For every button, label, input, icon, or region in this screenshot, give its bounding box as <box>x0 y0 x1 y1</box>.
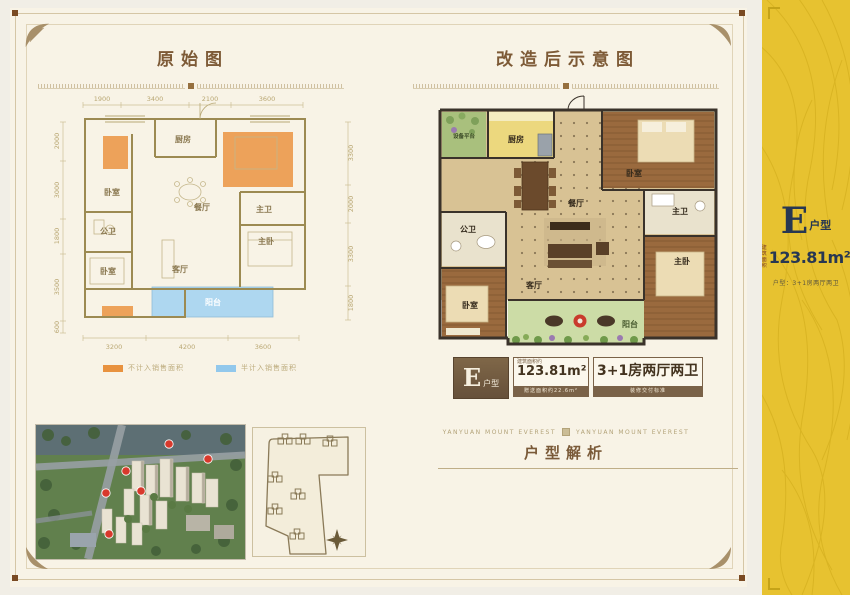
svg-text:1800: 1800 <box>347 295 355 312</box>
legend-label: 不计入销售面积 <box>128 363 184 373</box>
non-sellable-area <box>102 306 133 317</box>
svg-text:卧室: 卧室 <box>104 187 120 197</box>
blue-swatch-icon <box>216 365 236 372</box>
svg-text:1900: 1900 <box>94 95 111 103</box>
svg-text:客厅: 客厅 <box>171 264 188 274</box>
non-sellable-area <box>223 132 293 187</box>
svg-text:卧室: 卧室 <box>626 168 642 178</box>
side-unit-area: 建筑 面积 123.81m² <box>764 245 848 269</box>
svg-text:3500: 3500 <box>53 279 61 296</box>
original-floor-plan: 1900 3400 2100 3600 3200 4200 3600 2000 … <box>50 92 360 362</box>
legend-item: 半计入销售面积 <box>216 363 297 373</box>
svg-text:3400: 3400 <box>147 95 164 103</box>
title-divider <box>38 82 344 90</box>
title-divider <box>413 82 719 90</box>
svg-text:主卫: 主卫 <box>256 204 272 214</box>
brand-text: YANYUAN MOUNT EVEREST <box>576 429 689 436</box>
area-bonus-note: 赠送面积约22.6m² <box>514 386 588 396</box>
corner-square <box>12 575 18 581</box>
divider-diamond-icon <box>188 83 194 89</box>
strip-corner-mark <box>768 578 780 590</box>
svg-text:3300: 3300 <box>347 145 355 162</box>
corner-square <box>739 10 745 16</box>
unit-badges: E 户型 建筑面积约 123.81m² 赠送面积约22.6m² 3+1房两厅两卫… <box>453 357 703 399</box>
layout-badge: 3+1房两厅两卫 装修交付标准 <box>593 357 703 397</box>
non-sellable-area <box>103 136 128 169</box>
svg-text:餐厅: 餐厅 <box>567 198 584 208</box>
brand-line: YANYUAN MOUNT EVEREST YANYUAN MOUNT EVER… <box>420 428 712 436</box>
svg-text:卧室: 卧室 <box>100 266 116 276</box>
svg-text:客厅: 客厅 <box>525 280 542 290</box>
section-title-renovated: 改造后示意图 <box>415 45 721 70</box>
svg-text:阳台: 阳台 <box>205 297 221 307</box>
side-unit-suffix: 户型 <box>809 217 831 233</box>
svg-text:公卫: 公卫 <box>460 225 476 234</box>
svg-text:1800: 1800 <box>53 228 61 245</box>
svg-text:厨房: 厨房 <box>175 134 191 144</box>
area-legend: 不计入销售面积 半计入销售面积 <box>103 363 297 373</box>
leaf-pattern <box>762 0 850 595</box>
divider-diamond-icon <box>563 83 569 89</box>
layout-value: 3+1房两厅两卫 <box>594 358 702 386</box>
svg-text:主卧: 主卧 <box>674 256 690 266</box>
svg-text:餐厅: 餐厅 <box>193 202 210 212</box>
svg-text:3600: 3600 <box>259 95 276 103</box>
svg-text:主卫: 主卫 <box>672 206 688 216</box>
svg-text:3000: 3000 <box>53 182 61 199</box>
area-value: 123.81m² <box>514 365 588 386</box>
strip-corner-mark <box>768 7 780 19</box>
orange-swatch-icon <box>103 365 123 372</box>
legend-label: 半计入销售面积 <box>241 363 297 373</box>
area-badge: 建筑面积约 123.81m² 赠送面积约22.6m² <box>513 357 589 397</box>
svg-text:600: 600 <box>53 321 61 333</box>
svg-text:3200: 3200 <box>106 343 123 351</box>
corner-flourish-icon <box>707 545 733 571</box>
corner-square <box>12 10 18 16</box>
svg-text:设备平台: 设备平台 <box>453 132 476 140</box>
renovated-floor-plan: 设备平台 厨房 卧室 餐厅 公卫 卧室 客厅 主卫 主卧 阳台 <box>428 94 720 354</box>
corner-square <box>739 575 745 581</box>
aerial-photo <box>35 424 246 560</box>
side-unit-spec: 户型：3+1房两厅两卫 <box>764 278 848 287</box>
brochure-page: 原始图 改造后示意图 1900 3400 2100 3600 3200 4200… <box>0 0 850 595</box>
side-area-value: 123.81m² <box>769 248 850 267</box>
section-title-original: 原始图 <box>40 45 346 70</box>
brand-text: YANYUAN MOUNT EVEREST <box>443 429 556 436</box>
layout-note: 装修交付标准 <box>594 386 702 396</box>
svg-text:卧室: 卧室 <box>462 300 478 310</box>
svg-text:2100: 2100 <box>202 95 219 103</box>
svg-text:主卧: 主卧 <box>258 236 274 246</box>
legend-item: 不计入销售面积 <box>103 363 184 373</box>
svg-text:阳台: 阳台 <box>622 319 638 329</box>
svg-text:厨房: 厨房 <box>508 134 524 144</box>
side-panel-unit-info: E 户型 建筑 面积 123.81m² 户型：3+1房两厅两卫 <box>764 205 848 287</box>
unit-type-badge: E 户型 <box>453 357 509 399</box>
side-strip <box>762 0 850 595</box>
unit-type-suffix: 户型 <box>483 378 499 389</box>
svg-text:3300: 3300 <box>347 246 355 263</box>
svg-text:2000: 2000 <box>53 133 61 150</box>
svg-text:2000: 2000 <box>347 196 355 213</box>
analysis-underline <box>438 468 738 469</box>
area-prefix: 建筑 面积 <box>762 245 767 269</box>
side-unit-type: E 户型 <box>764 205 848 237</box>
svg-text:公卫: 公卫 <box>100 227 116 236</box>
brand-logo-icon <box>562 428 570 436</box>
compass-icon <box>326 529 348 551</box>
site-plan <box>252 427 366 557</box>
svg-text:4200: 4200 <box>179 343 196 351</box>
unit-type-letter: E <box>463 366 481 390</box>
svg-text:3600: 3600 <box>255 343 272 351</box>
analysis-title: 户型解析 <box>420 442 712 463</box>
side-unit-letter: E <box>781 205 808 237</box>
